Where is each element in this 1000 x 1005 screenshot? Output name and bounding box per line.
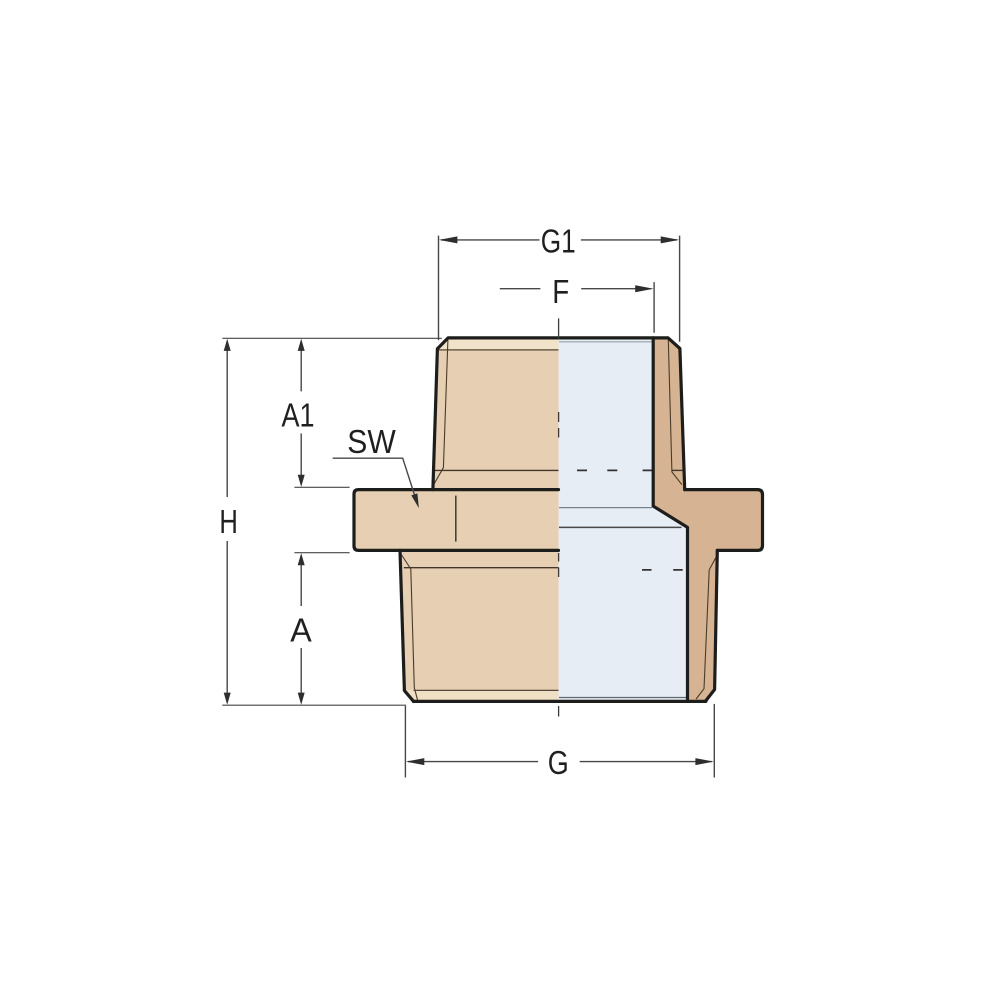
svg-text:G1: G1 <box>541 223 576 260</box>
svg-text:A: A <box>290 612 312 649</box>
svg-text:A1: A1 <box>282 398 315 435</box>
svg-text:F: F <box>552 274 569 311</box>
svg-text:SW: SW <box>347 424 396 461</box>
svg-text:H: H <box>219 504 238 541</box>
svg-text:G: G <box>548 745 569 782</box>
